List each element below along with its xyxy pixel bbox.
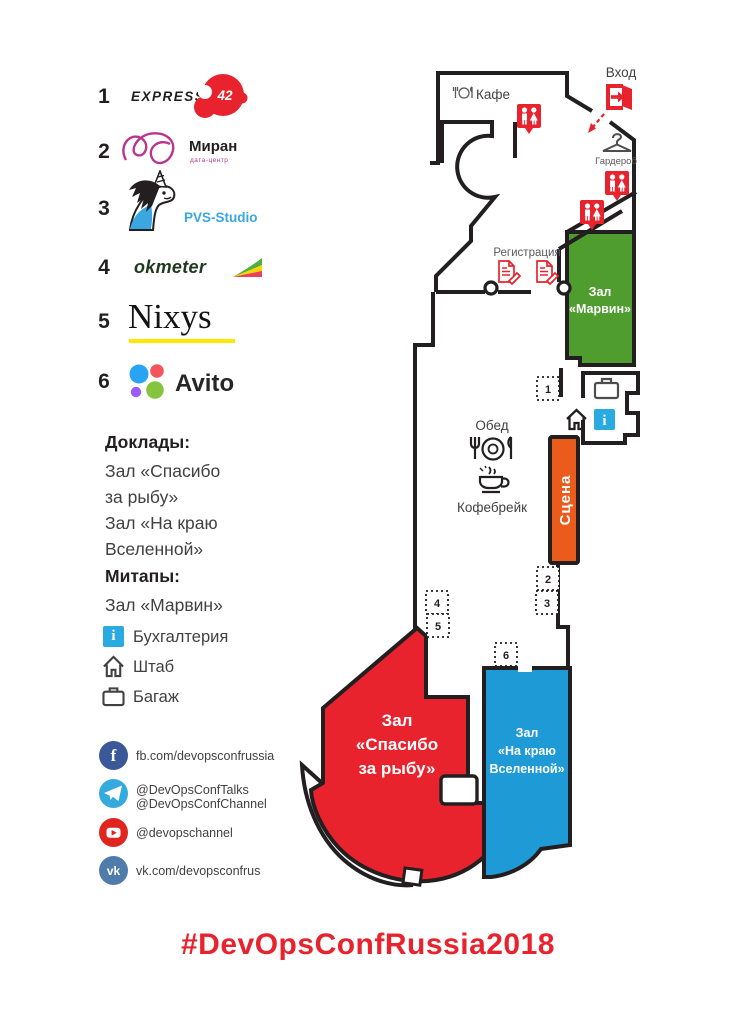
marker-3: 3 [536,591,558,614]
entrance-arrow [592,114,604,128]
room-marvin-label: Зал [589,285,612,299]
coffee-label: Кофебрейк [457,500,527,515]
lunch-label: Обед [475,418,508,433]
marker-2: 2 [537,567,559,590]
coffee-icon [480,466,509,492]
marker-1: 1 [537,377,559,400]
registration-label: Регистрация [493,247,560,259]
door-pivot [558,282,570,294]
room-fish-label: за рыбу» [359,759,436,778]
cafe-label: Кафе [476,87,510,102]
wardrobe-label: Гардероб [595,156,637,167]
svg-text:2: 2 [545,574,551,586]
svg-text:1: 1 [545,384,551,396]
marker-6: 6 [495,643,517,666]
cafe-cutlery-icon [454,87,473,98]
entrance-arrowhead [588,123,596,133]
stairs-cutout [441,776,477,804]
marker-4: 4 [426,591,448,614]
wc-icon [517,104,541,134]
svg-text:4: 4 [434,598,441,610]
door-gap [518,663,532,672]
info-icon: i [594,409,615,430]
floor-plan-map: 1 2 3 4 5 6 [0,0,736,1024]
wall-notch [403,868,422,885]
entrance-label: Вход [606,65,637,80]
marker-5: 5 [427,614,449,637]
room-fish [311,628,485,881]
room-fish-label: «Спасибо [356,735,438,754]
briefcase-icon [595,379,618,398]
room-marvin-label: «Марвин» [569,302,631,316]
door-pivot [485,282,497,294]
lunch-icon [471,437,511,460]
svg-text:6: 6 [503,650,509,662]
room-universe-label: Зал [516,726,539,740]
entrance-door-icon [606,84,632,110]
home-icon [567,410,586,429]
registration-doc-icon [499,261,520,284]
registration-doc-icon [537,261,558,284]
wall-corridor-left [415,292,433,629]
svg-text:3: 3 [544,598,550,610]
svg-text:5: 5 [435,621,441,633]
wall-cafe [430,73,592,163]
stage-label: Сцена [557,475,574,526]
room-universe-label: «На краю [498,744,556,758]
svg-text:i: i [602,413,606,429]
wall-inner-cafe [436,122,495,292]
conference-floor-plan-poster: 1 EXPRESS 42 2 Миран дата-центр 3 PVS-St… [0,0,736,1024]
room-universe-label: Вселенной» [489,762,564,776]
room-fish-label: Зал [382,711,413,730]
